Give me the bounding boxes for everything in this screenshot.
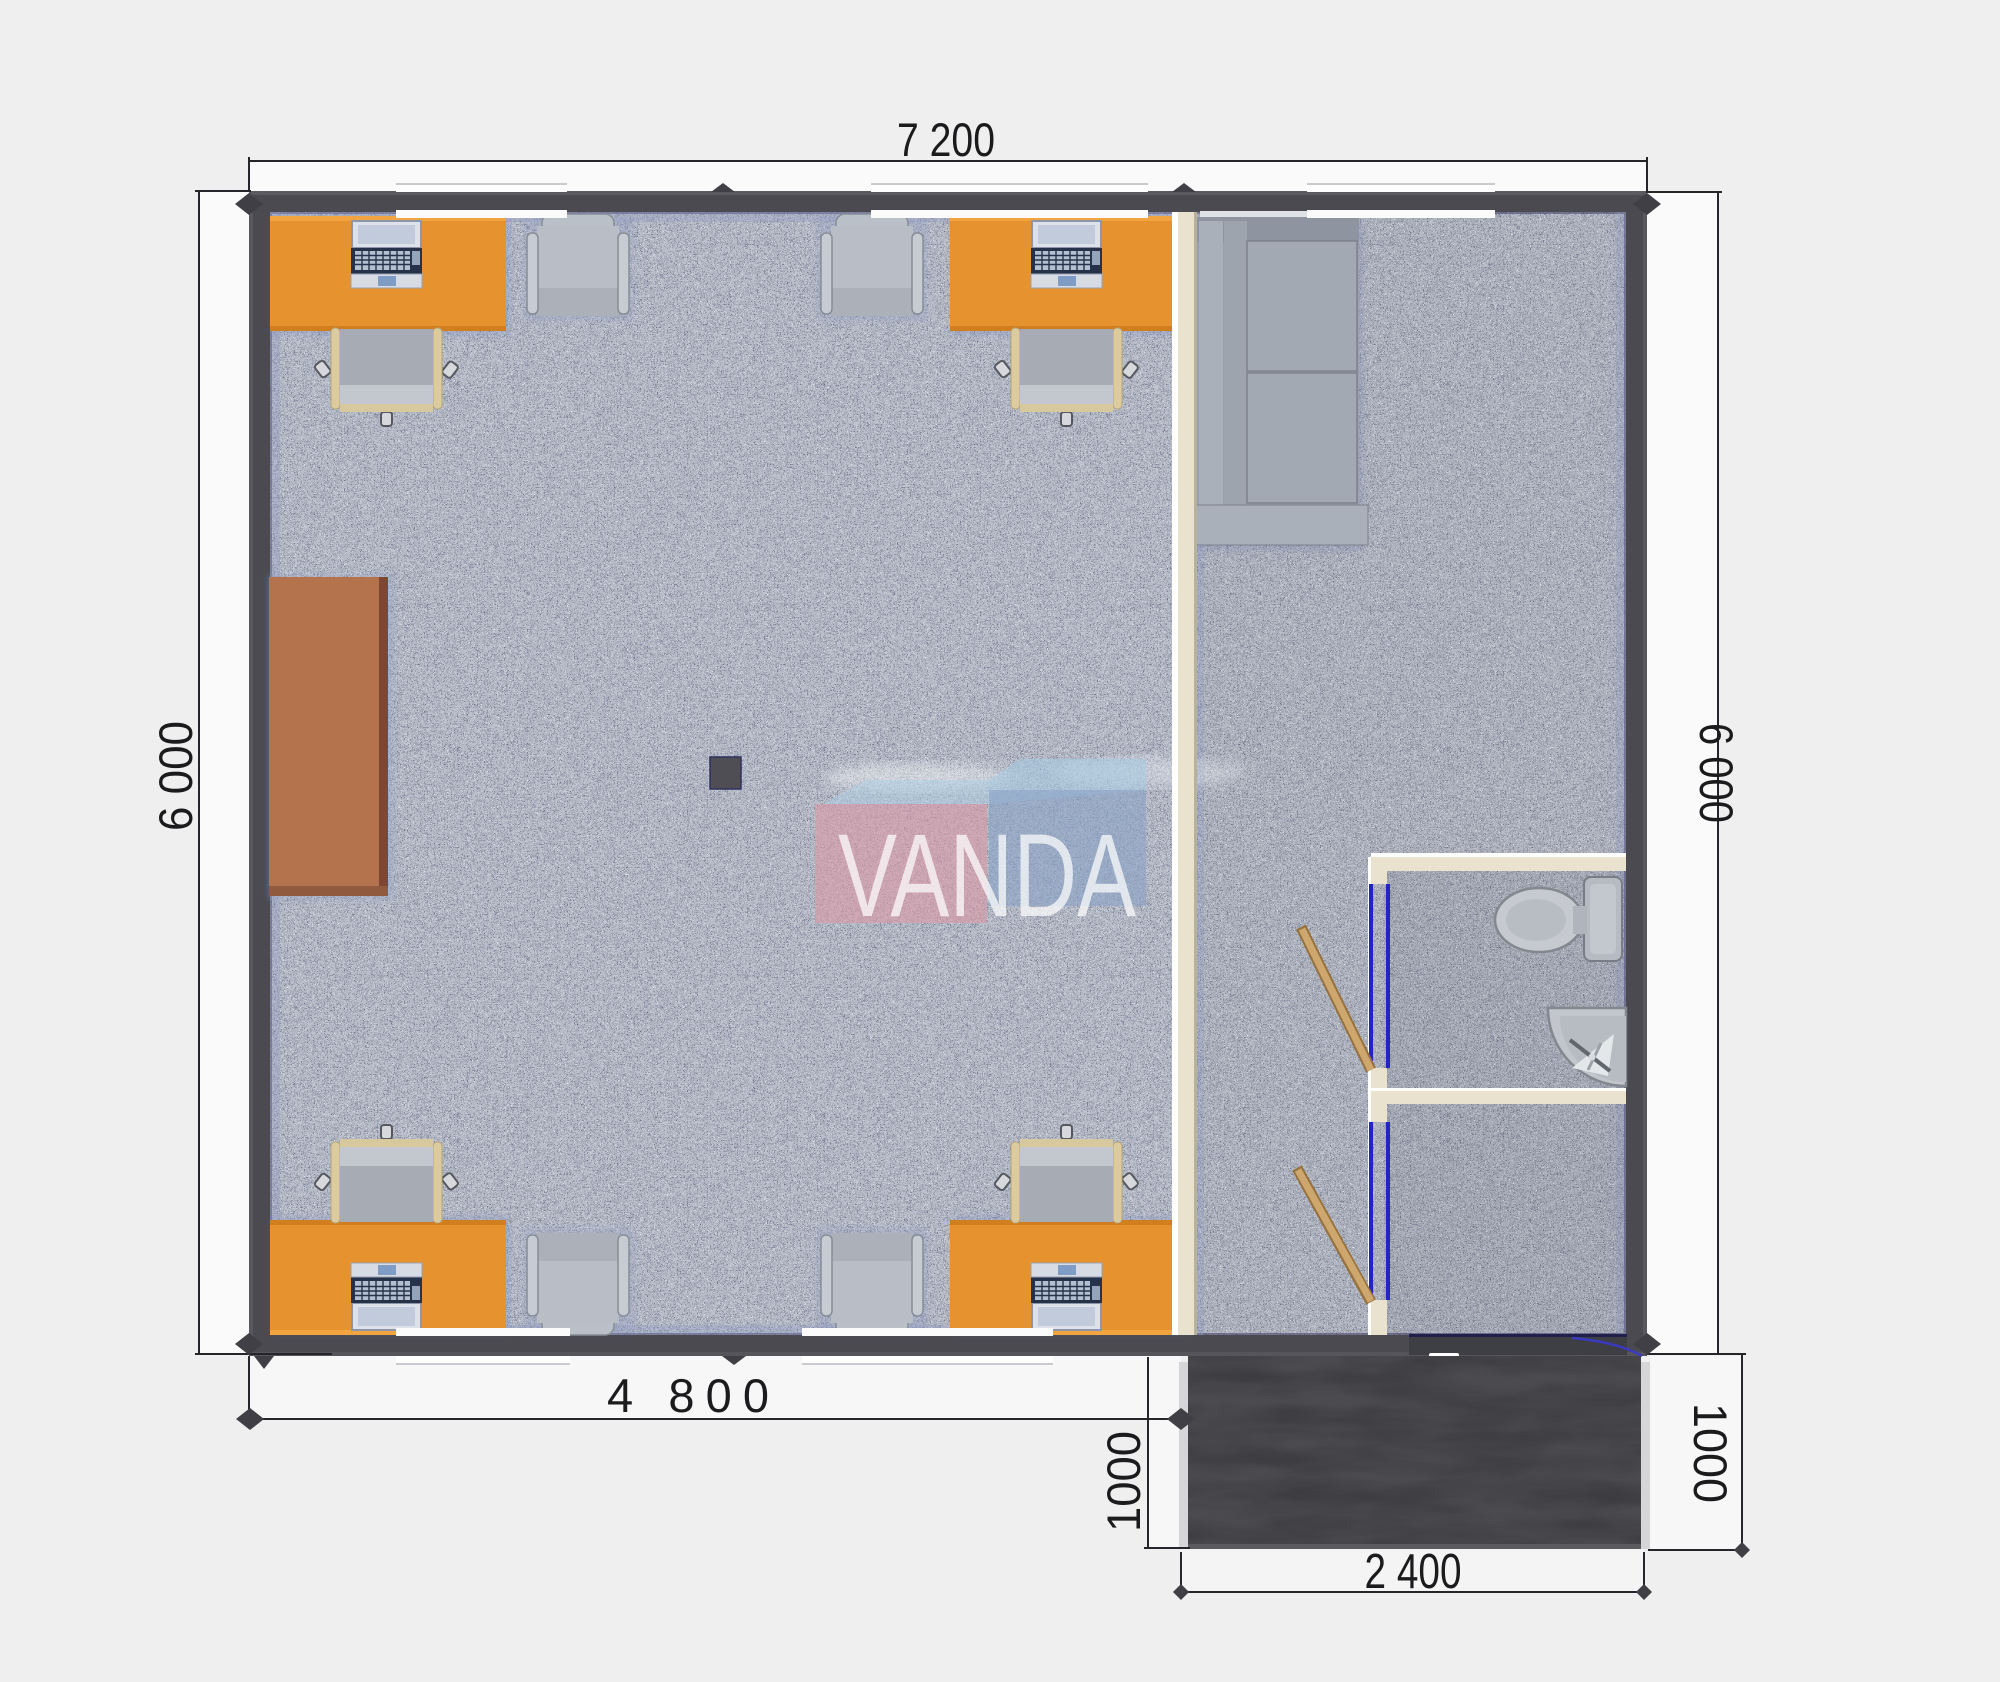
svg-text:1000: 1000 [1684, 1403, 1737, 1503]
svg-text:7 200: 7 200 [897, 113, 995, 166]
svg-text:4 800: 4 800 [607, 1369, 769, 1422]
svg-text:VANDA: VANDA [838, 810, 1136, 942]
svg-text:6 000: 6 000 [149, 721, 202, 831]
svg-text:1000: 1000 [1097, 1431, 1150, 1532]
svg-text:2 400: 2 400 [1365, 1545, 1462, 1599]
svg-text:6 000: 6 000 [1690, 723, 1743, 823]
